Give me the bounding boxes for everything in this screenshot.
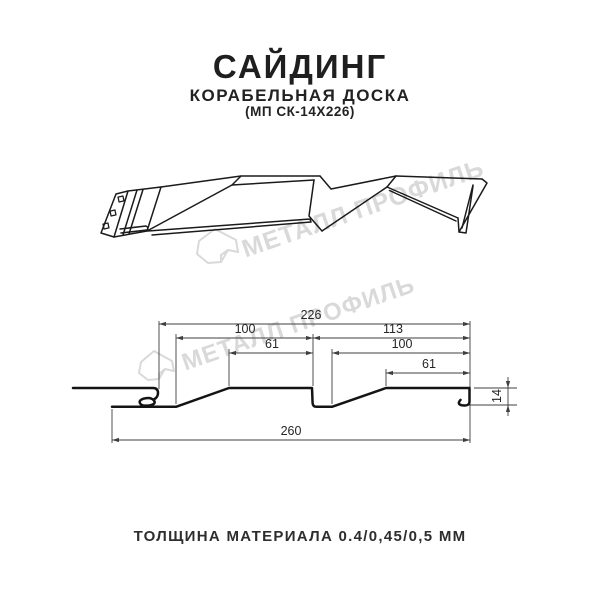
cross-section-drawing — [0, 0, 600, 600]
dim-label-260: 260 — [281, 424, 302, 438]
dimension-lines — [112, 324, 508, 440]
dim-label-100-right: 100 — [392, 337, 413, 351]
extension-lines — [112, 321, 517, 443]
dim-label-61-right: 61 — [422, 357, 436, 371]
dim-label-14: 14 — [490, 389, 504, 403]
dim-label-113: 113 — [383, 322, 403, 336]
dimension-arrows — [112, 322, 510, 442]
dim-label-226: 226 — [301, 308, 322, 322]
dim-label-61-left: 61 — [265, 337, 279, 351]
drawing-page: САЙДИНГ КОРАБЕЛЬНАЯ ДОСКА (МП СК-14Х226)… — [0, 0, 600, 600]
section-profile-outline — [73, 388, 470, 407]
thickness-note: ТОЛЩИНА МАТЕРИАЛА 0.4/0,45/0,5 ММ — [0, 528, 600, 545]
dim-label-100-left: 100 — [235, 322, 256, 336]
